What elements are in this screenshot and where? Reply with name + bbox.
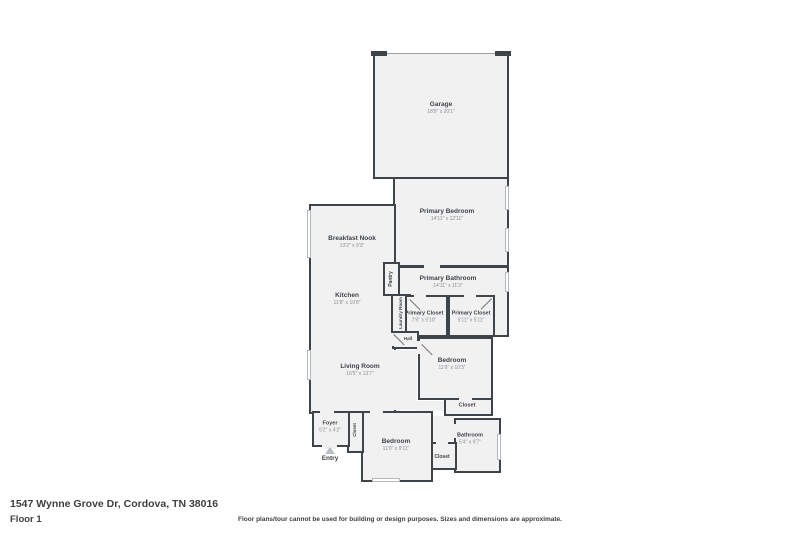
room-name: Foyer xyxy=(319,420,341,427)
room-name: Bedroom xyxy=(438,357,467,365)
room-dims: 18'9" x 20'1" xyxy=(427,109,454,115)
garage-wall-stub xyxy=(495,51,511,56)
label-primary-closet-left: Primary Closet 7'9" x 5'10" xyxy=(405,310,444,323)
window xyxy=(497,434,501,460)
disclaimer-text: Floor plans/tour cannot be used for buil… xyxy=(0,516,800,523)
door-gap xyxy=(320,409,334,415)
window xyxy=(505,186,509,210)
label-bathroom: Bathroom 5'4" x 9'7" xyxy=(457,432,483,445)
floor-plan: Garage 18'9" x 20'1" Primary Bedroom 14'… xyxy=(0,0,800,533)
label-closet-bedroom: Closet xyxy=(434,454,449,460)
label-garage: Garage 18'9" x 20'1" xyxy=(427,101,454,115)
room-dims: 14'11" x 11'3" xyxy=(420,283,477,289)
door-gap xyxy=(370,409,383,415)
room-dims: 7'9" x 5'10" xyxy=(405,317,444,323)
room-name: Garage xyxy=(427,101,454,109)
room-name: Closet xyxy=(434,454,449,460)
room-name: Living Room xyxy=(340,363,379,371)
room-name: Breakfast Nook xyxy=(328,235,376,243)
window xyxy=(505,228,509,252)
label-closet-foyer: Closet xyxy=(352,423,358,437)
garage-wall-stub xyxy=(371,51,387,56)
hallway-floor xyxy=(417,401,444,411)
door-gap xyxy=(414,294,426,299)
room-name: Bathroom xyxy=(457,432,483,439)
room-dims: 11'6" x 10'3" xyxy=(438,365,467,371)
room-name: Primary Bedroom xyxy=(420,208,475,216)
room-name: Laundry Room xyxy=(398,297,404,329)
room-dims: 5'4" x 9'7" xyxy=(457,439,483,445)
room-name: Hall xyxy=(404,336,412,342)
room-dims: 5'2" x 4'2" xyxy=(319,427,341,433)
label-primary-closet-right: Primary Closet 5'11" x 5'11" xyxy=(452,310,491,323)
label-closet-hall: Closet xyxy=(459,403,476,410)
door-gap xyxy=(459,396,472,401)
label-foyer: Foyer 5'2" x 4'2" xyxy=(319,420,341,433)
room-dims: 5'11" x 5'11" xyxy=(452,317,491,323)
property-address: 1547 Wynne Grove Dr, Cordova, TN 38016 xyxy=(10,498,218,510)
window xyxy=(505,272,509,292)
entry-arrow-icon xyxy=(325,447,335,454)
window xyxy=(372,478,400,482)
label-living-room: Living Room 16'5" x 13'7" xyxy=(340,363,379,377)
room-name: Kitchen xyxy=(333,292,360,300)
room-name: Pantry xyxy=(388,271,394,287)
room-dims: 11'0" x 9'11" xyxy=(382,446,411,452)
entry-label: Entry xyxy=(322,455,339,463)
room-dims: 11'8" x 10'8" xyxy=(333,300,360,306)
label-breakfast-nook: Breakfast Nook 13'2" x 9'3" xyxy=(328,235,376,249)
hallway-floor xyxy=(392,350,417,410)
label-kitchen: Kitchen 11'8" x 10'8" xyxy=(333,292,360,306)
label-primary-bathroom: Primary Bathroom 14'11" x 11'3" xyxy=(420,275,477,289)
wall-bedroom-bathroom xyxy=(393,265,509,268)
label-hall: Hall xyxy=(404,336,412,342)
room-dims: 13'2" x 9'3" xyxy=(328,243,376,249)
room-name: Closet xyxy=(352,423,358,437)
room-dims: 14'11" x 12'11" xyxy=(420,216,475,222)
label-pantry: Pantry xyxy=(388,271,394,287)
room-dims: 16'5" x 13'7" xyxy=(340,371,379,377)
hallway-floor xyxy=(433,416,454,441)
room-name: Primary Closet xyxy=(405,310,444,317)
label-laundry-room: Laundry Room xyxy=(398,297,404,329)
room-name: Closet xyxy=(459,403,476,410)
door-gap xyxy=(464,294,476,299)
label-bedroom-3: Bedroom 11'0" x 9'11" xyxy=(382,438,411,452)
room-name: Primary Closet xyxy=(452,310,491,317)
room-garage xyxy=(373,53,509,179)
label-entry: Entry xyxy=(322,455,339,463)
label-bedroom-2: Bedroom 11'6" x 10'3" xyxy=(438,357,467,371)
door-gap xyxy=(436,440,448,445)
door-gap xyxy=(424,264,440,269)
label-primary-bedroom: Primary Bedroom 14'11" x 12'11" xyxy=(420,208,475,222)
room-name: Bedroom xyxy=(382,438,411,446)
window xyxy=(307,210,311,258)
room-name: Primary Bathroom xyxy=(420,275,477,283)
window xyxy=(307,350,311,380)
